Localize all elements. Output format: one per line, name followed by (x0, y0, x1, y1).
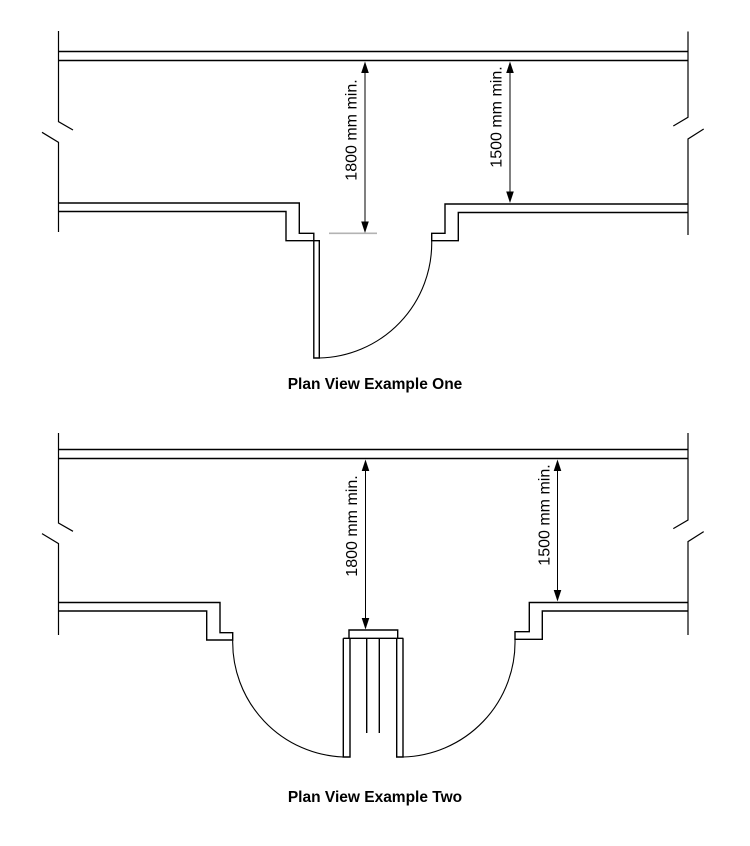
corridor-walls-one (42, 31, 704, 358)
door-swing-arc-left (233, 640, 344, 757)
caption-example-two: Plan View Example Two (288, 789, 462, 806)
door-swing-arc-one (319, 241, 431, 358)
left-door-leaf (343, 638, 350, 757)
dimension-1500-two: 1500 mm min. (537, 460, 562, 602)
corridor-walls-two (42, 433, 704, 640)
dimension-1500-one: 1500 mm min. (489, 62, 514, 204)
left-break-line (42, 433, 73, 635)
plan-view-example-one: 1800 mm min. 1500 mm min. Plan View Exam… (42, 31, 704, 393)
dimension-1800-one: 1800 mm min. (329, 62, 377, 234)
bottom-wall-right (432, 204, 688, 241)
plan-view-figure: 1800 mm min. 1500 mm min. Plan View Exam… (0, 0, 750, 846)
figure-canvas: 1800 mm min. 1500 mm min. Plan View Exam… (0, 0, 750, 846)
dimension-label-1500: 1500 mm min. (489, 66, 506, 167)
dimension-label-1800: 1800 mm min. (344, 475, 361, 576)
dimension-label-1500: 1500 mm min. (537, 464, 554, 565)
bottom-wall-left (59, 603, 233, 641)
bottom-wall-right (515, 603, 688, 640)
plan-view-example-two: 1800 mm min. 1500 mm min. Plan View Exam… (42, 433, 704, 806)
door-frame-cap (349, 630, 398, 638)
double-door-assembly (343, 630, 403, 757)
caption-example-one: Plan View Example One (288, 376, 463, 393)
dimension-label-1800: 1800 mm min. (344, 79, 361, 180)
bottom-wall-left-and-door-leaf (59, 203, 319, 358)
door-swing-arc-right (403, 639, 515, 757)
right-break-line (673, 433, 703, 635)
right-door-leaf (397, 638, 403, 757)
dimension-1800-two: 1800 mm min. (344, 460, 369, 630)
